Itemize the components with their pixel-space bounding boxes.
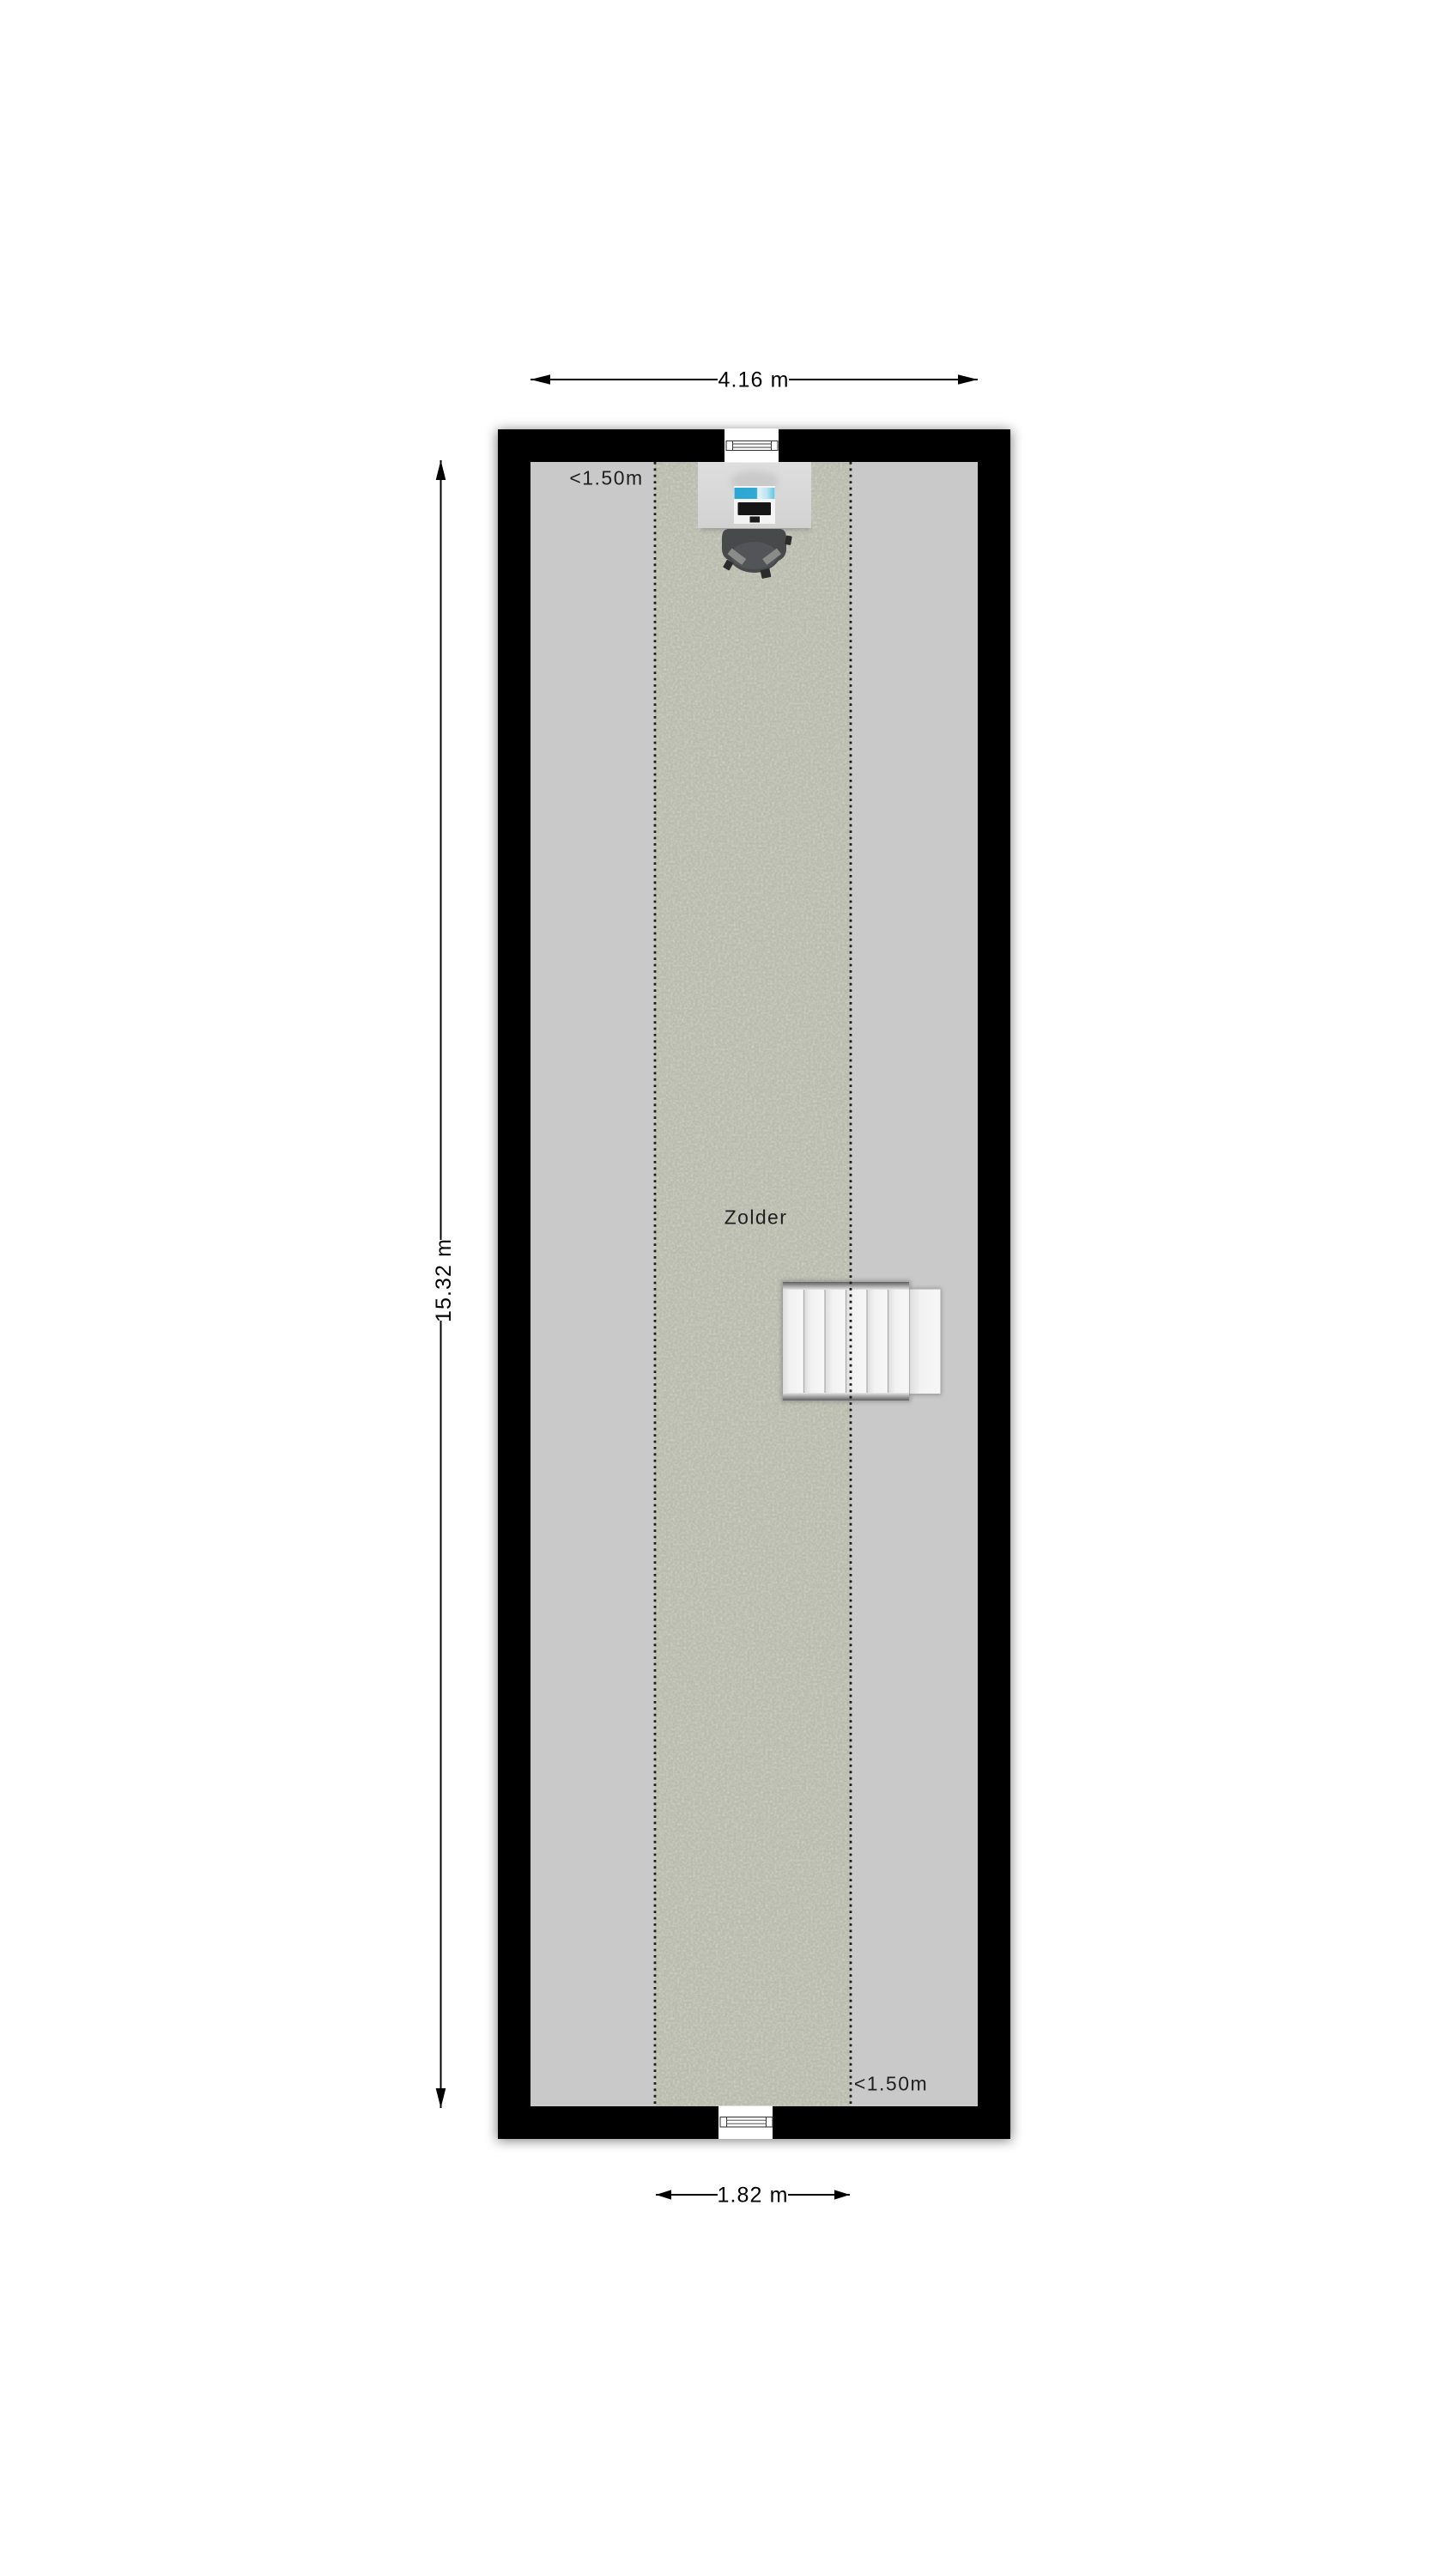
svg-text:Zolder: Zolder	[724, 1206, 788, 1229]
svg-text:15.32 m: 15.32 m	[432, 1238, 456, 1322]
svg-text:<1.50m: <1.50m	[569, 467, 643, 489]
svg-text:<1.50m: <1.50m	[854, 2073, 928, 2095]
svg-text:1.82 m: 1.82 m	[717, 2184, 788, 2208]
svg-text:4.16 m: 4.16 m	[718, 368, 789, 392]
